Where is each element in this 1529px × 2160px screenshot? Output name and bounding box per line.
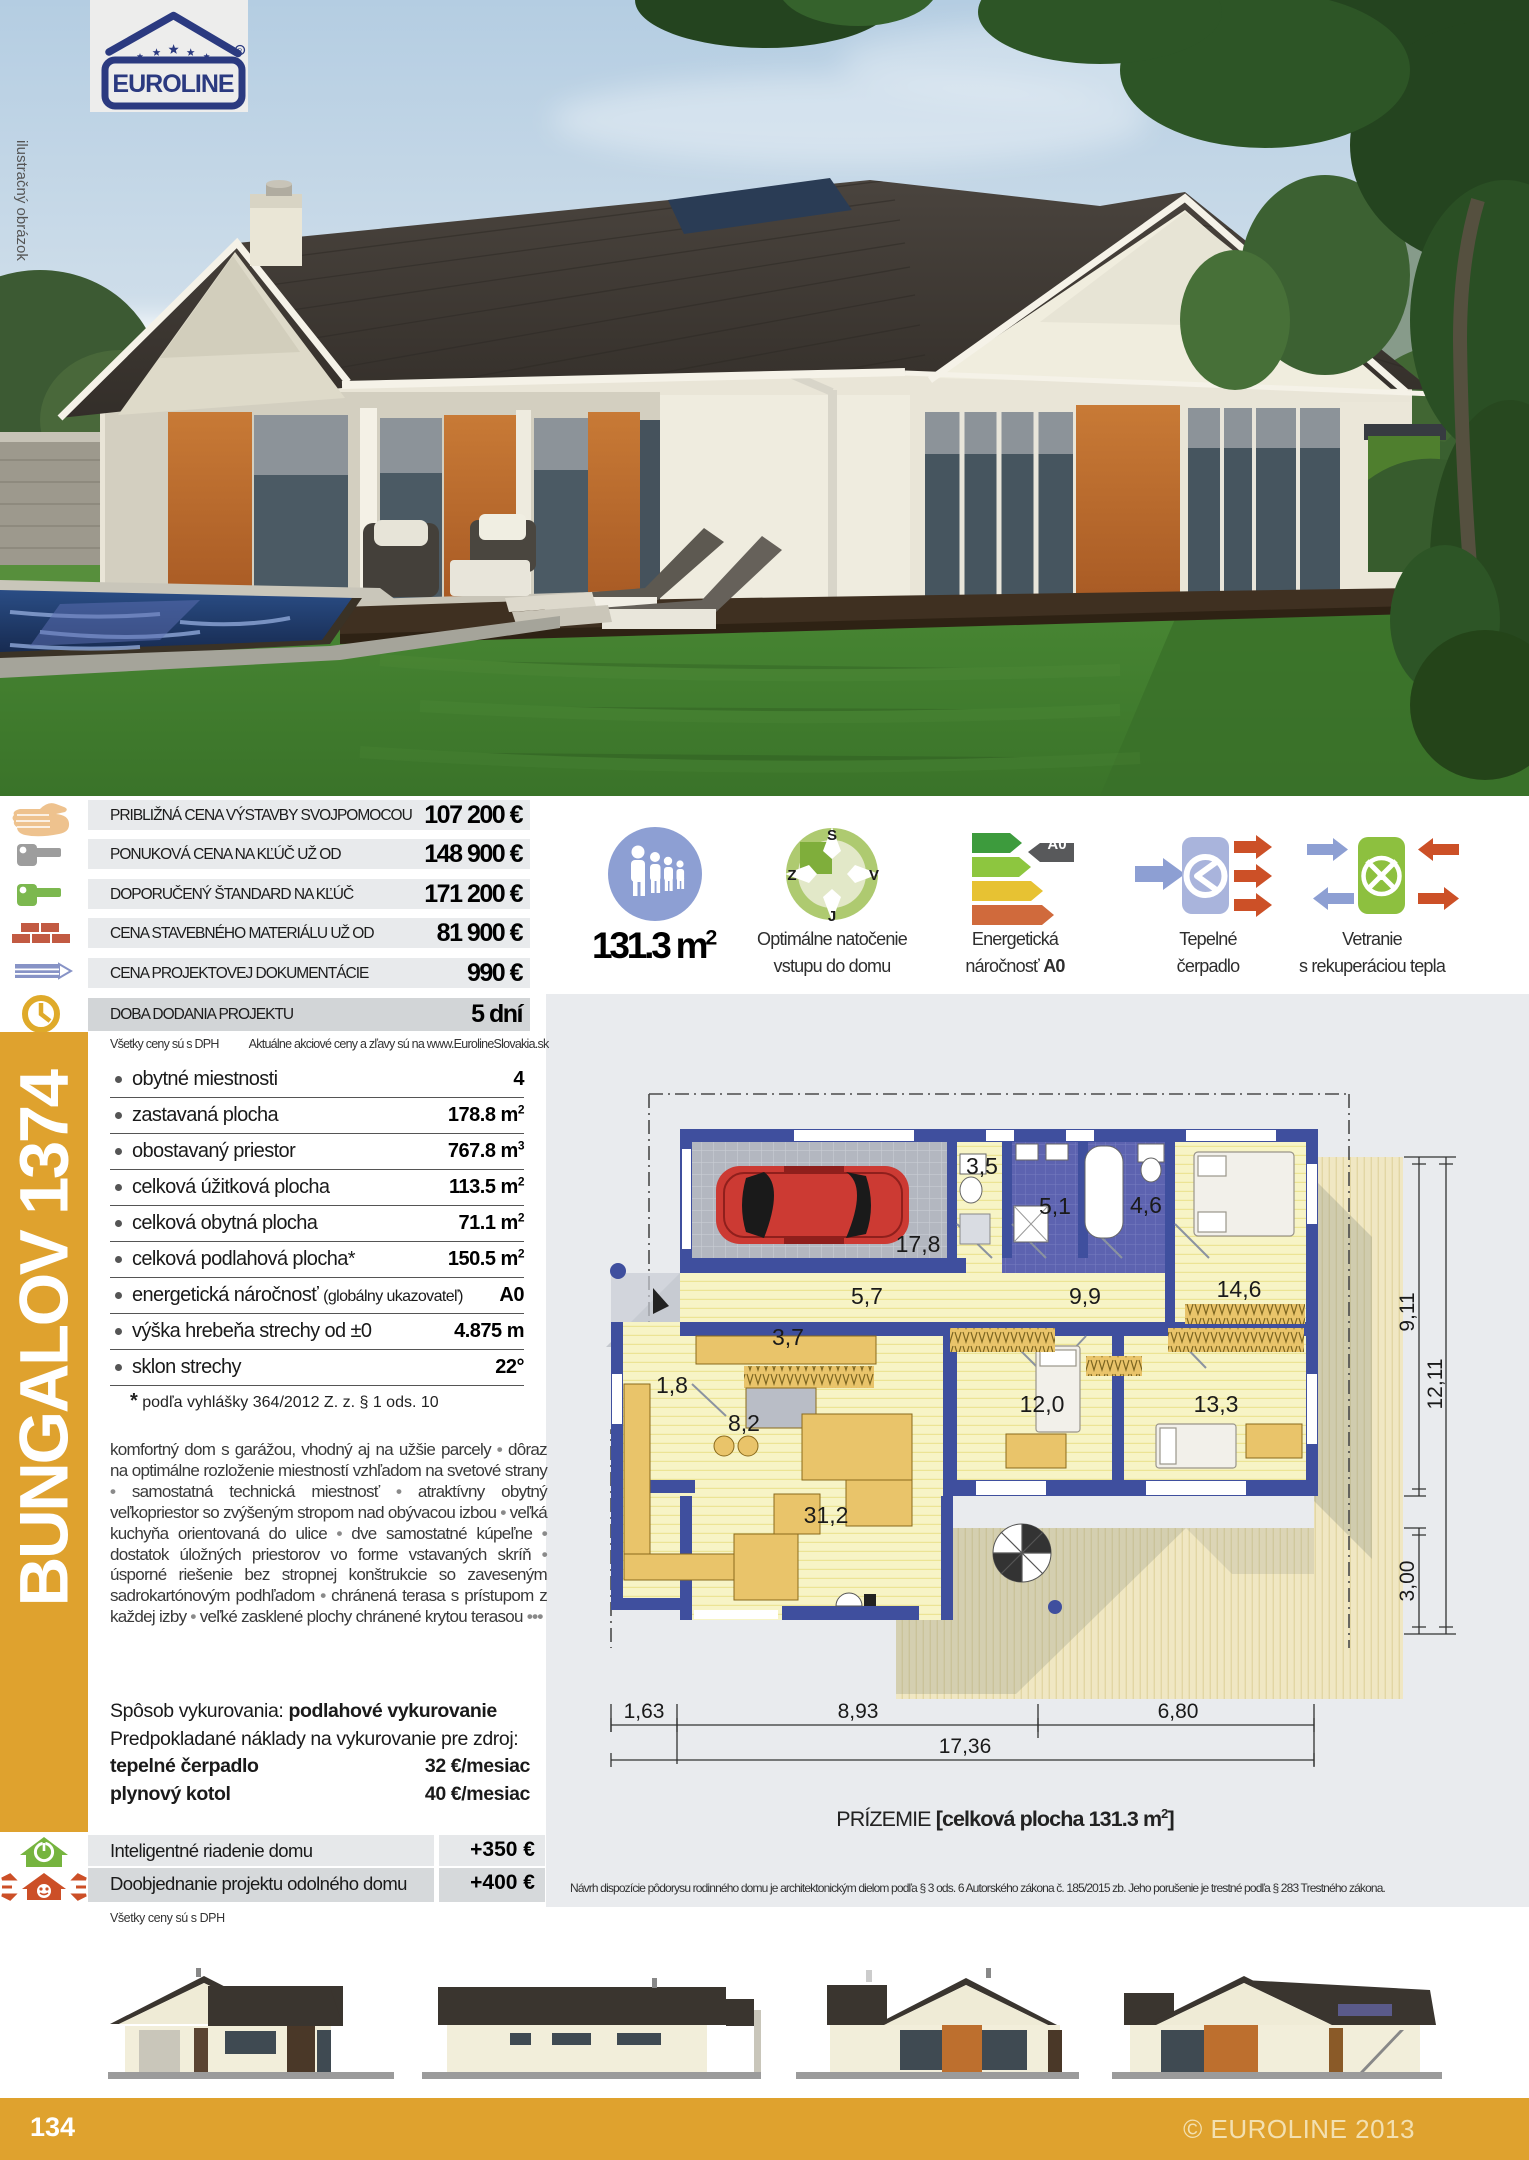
svg-text:14,6: 14,6 xyxy=(1217,1276,1262,1302)
svg-text:V: V xyxy=(869,867,879,884)
svg-text:31,2: 31,2 xyxy=(804,1502,849,1528)
svg-text:5,7: 5,7 xyxy=(851,1283,883,1309)
svg-text:8,93: 8,93 xyxy=(838,1700,879,1723)
svg-text:S: S xyxy=(827,827,837,844)
svg-text:3,7: 3,7 xyxy=(772,1324,804,1350)
svg-text:12,0: 12,0 xyxy=(1020,1391,1065,1417)
svg-text:4,6: 4,6 xyxy=(1130,1192,1162,1218)
svg-text:3,5: 3,5 xyxy=(966,1153,998,1179)
svg-text:1,63: 1,63 xyxy=(624,1700,665,1723)
svg-text:6,80: 6,80 xyxy=(1158,1700,1199,1723)
svg-text:J: J xyxy=(828,908,836,925)
svg-text:17,8: 17,8 xyxy=(896,1231,941,1257)
svg-text:9,11: 9,11 xyxy=(1396,1292,1419,1331)
svg-text:9,9: 9,9 xyxy=(1069,1283,1101,1309)
svg-text:8,2: 8,2 xyxy=(728,1410,760,1436)
svg-text:EUROLINE: EUROLINE xyxy=(112,70,234,98)
svg-text:1,8: 1,8 xyxy=(656,1372,688,1398)
svg-text:R: R xyxy=(238,48,243,55)
svg-text:3,00: 3,00 xyxy=(1396,1561,1419,1602)
svg-text:Z: Z xyxy=(787,867,796,884)
svg-text:17,36: 17,36 xyxy=(939,1735,992,1758)
svg-text:A0: A0 xyxy=(1047,836,1066,853)
svg-text:12,11: 12,11 xyxy=(1424,1359,1447,1410)
svg-text:5,1: 5,1 xyxy=(1039,1193,1071,1219)
svg-text:13,3: 13,3 xyxy=(1194,1391,1239,1417)
